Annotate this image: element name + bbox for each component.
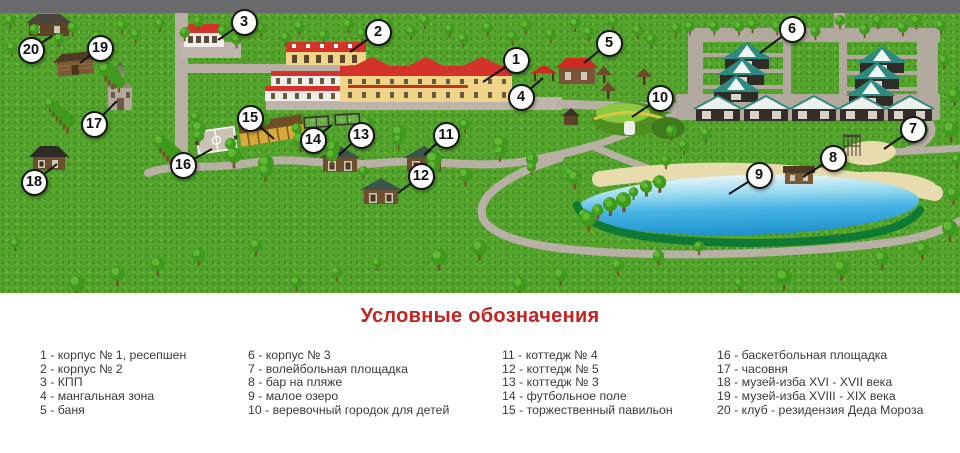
tree-icon — [294, 21, 305, 35]
legend-item: 10 - веревочный городок для детей — [248, 404, 449, 418]
legend-item: 7 - волейбольная площадка — [248, 363, 449, 377]
tree-icon — [646, 34, 657, 48]
map-marker-14: 14 — [300, 127, 327, 154]
tree-icon — [939, 55, 950, 69]
tree-icon — [393, 134, 404, 149]
legend-item: 20 - клуб - резидензия Деда Мороза — [717, 404, 923, 418]
tree-icon — [250, 239, 262, 255]
tree-icon — [875, 251, 889, 270]
tree-icon — [507, 31, 518, 45]
legend-item: 13 - коттедж № 3 — [502, 376, 673, 390]
tree-icon — [54, 33, 64, 47]
legend-item: 12 - коттедж № 5 — [502, 363, 673, 377]
tree-icon — [581, 211, 596, 231]
legend-item: 14 - футбольное поле — [502, 390, 673, 404]
tree-icon — [459, 168, 472, 186]
tree-icon — [679, 140, 690, 154]
legend-item: 16 - баскетбольная площадка — [717, 349, 923, 363]
tree-icon — [911, 15, 922, 29]
tree-icon — [942, 220, 958, 241]
building-museum-izba-16-17 — [29, 146, 69, 170]
tree-icon — [943, 121, 959, 142]
legend-item: 4 - мангальная зона — [40, 390, 186, 404]
map-marker-3: 3 — [231, 9, 258, 36]
map-marker-2: 2 — [365, 19, 392, 46]
small-hut — [562, 108, 580, 125]
tree-icon — [916, 242, 929, 260]
tree-icon — [834, 260, 849, 280]
tree-icon — [117, 20, 128, 34]
tree-icon — [444, 24, 455, 38]
football-goal — [304, 116, 329, 128]
tree-icon — [460, 119, 471, 133]
legend-item: 9 - малое озеро — [248, 390, 449, 404]
tree-icon — [633, 25, 644, 39]
tree-icon — [570, 18, 581, 32]
tree-icon — [343, 19, 354, 33]
tree-icon — [735, 278, 745, 291]
map-marker-17: 17 — [81, 111, 108, 138]
map-marker-8: 8 — [820, 145, 847, 172]
map-marker-6: 6 — [779, 16, 806, 43]
tree-icon — [947, 187, 960, 205]
gazebo — [636, 68, 652, 85]
tree-icon — [521, 20, 532, 34]
map-marker-4: 4 — [508, 84, 535, 111]
tree-icon — [291, 276, 302, 291]
tree-icon — [671, 23, 682, 37]
building-white-wing-a — [271, 71, 343, 86]
legend-column-4: 16 - баскетбольная площадка17 - часовня1… — [717, 349, 923, 418]
tree-icon — [151, 257, 165, 276]
building-cottage-3 — [319, 146, 361, 172]
building-white-wing-b — [265, 86, 342, 101]
legend-title: Условные обозначения — [0, 305, 960, 328]
legend-item: 5 - баня — [40, 404, 186, 418]
tree-icon — [545, 29, 556, 43]
tree-icon — [68, 22, 79, 36]
legend-item: 8 - бар на пляже — [248, 376, 449, 390]
map-marker-11: 11 — [433, 122, 460, 149]
map-marker-9: 9 — [746, 162, 773, 189]
resort-map: 1234567891011121314151617181920 — [0, 0, 960, 293]
map-marker-13: 13 — [348, 122, 375, 149]
tree-icon — [873, 15, 884, 29]
legend-item: 3 - КПП — [40, 376, 186, 390]
tree-icon — [373, 258, 383, 271]
tree-icon — [431, 249, 447, 270]
legend-item: 18 - музей-изба XVI - XVII века — [717, 376, 923, 390]
tree-icon — [332, 267, 343, 281]
resort-map-page: 1234567891011121314151617181920 Условные… — [0, 0, 960, 453]
map-marker-7: 7 — [900, 116, 927, 143]
tree-icon — [69, 275, 85, 293]
map-marker-10: 10 — [647, 85, 674, 112]
tree-icon — [948, 88, 960, 106]
tree-icon — [612, 259, 624, 275]
tree-icon — [5, 15, 16, 29]
tree-icon — [192, 248, 205, 266]
gazebo — [600, 82, 616, 99]
tree-icon — [568, 170, 582, 189]
tree-icon — [472, 240, 487, 260]
tree-icon — [155, 18, 166, 32]
tree-icon — [776, 269, 792, 290]
tree-icon — [584, 27, 595, 41]
tree-icon — [359, 166, 369, 179]
tree-icon — [110, 266, 125, 286]
tree-icon — [406, 26, 417, 40]
map-illustration — [0, 0, 960, 293]
tree-icon — [458, 33, 469, 47]
legend-item: 17 - часовня — [717, 363, 923, 377]
tree-icon — [259, 164, 272, 182]
legend-item: 11 - коттедж № 4 — [502, 349, 673, 363]
building-beach-bar — [783, 166, 815, 184]
legend-item: 6 - корпус № 3 — [248, 349, 449, 363]
tree-icon — [554, 268, 567, 286]
legend-item: 15 - торжественный павильон — [502, 404, 673, 418]
map-marker-20: 20 — [18, 37, 45, 64]
map-marker-15: 15 — [237, 105, 264, 132]
map-marker-18: 18 — [21, 169, 48, 196]
building-cottage-5 — [360, 178, 402, 204]
legend-column-1: 1 - корпус № 1, ресепшен2 - корпус № 23 … — [40, 349, 186, 418]
building-mangal-zone — [531, 65, 557, 81]
legend-column-3: 11 - коттедж № 412 - коттедж № 513 - кот… — [502, 349, 673, 418]
tree-icon — [513, 277, 527, 293]
tree-icon — [952, 154, 960, 168]
tree-icon — [420, 15, 431, 29]
legend-column-2: 6 - корпус № 37 - волейбольная площадка8… — [248, 349, 449, 418]
tree-icon — [7, 42, 18, 56]
map-marker-16: 16 — [170, 152, 197, 179]
tree-icon — [11, 238, 21, 251]
legend-item: 2 - корпус № 2 — [40, 363, 186, 377]
map-marker-5: 5 — [596, 30, 623, 57]
gazebo — [596, 66, 612, 83]
legend-item: 1 - корпус № 1, ресепшен — [40, 349, 186, 363]
tree-icon — [483, 22, 494, 36]
tree-icon — [256, 23, 267, 37]
tree-icon — [608, 16, 619, 30]
legend-item: 19 - музей-изба XVIII - XIX века — [717, 390, 923, 404]
volleyball-sand — [841, 139, 897, 167]
tree-icon — [130, 29, 141, 43]
building-banya — [556, 58, 598, 84]
tree-icon — [494, 145, 506, 161]
map-marker-1: 1 — [503, 47, 530, 74]
building-korpus-2 — [286, 42, 366, 65]
map-marker-12: 12 — [408, 163, 435, 190]
map-marker-19: 19 — [87, 35, 114, 62]
tree-icon — [701, 128, 712, 142]
tree-icon — [653, 250, 664, 265]
